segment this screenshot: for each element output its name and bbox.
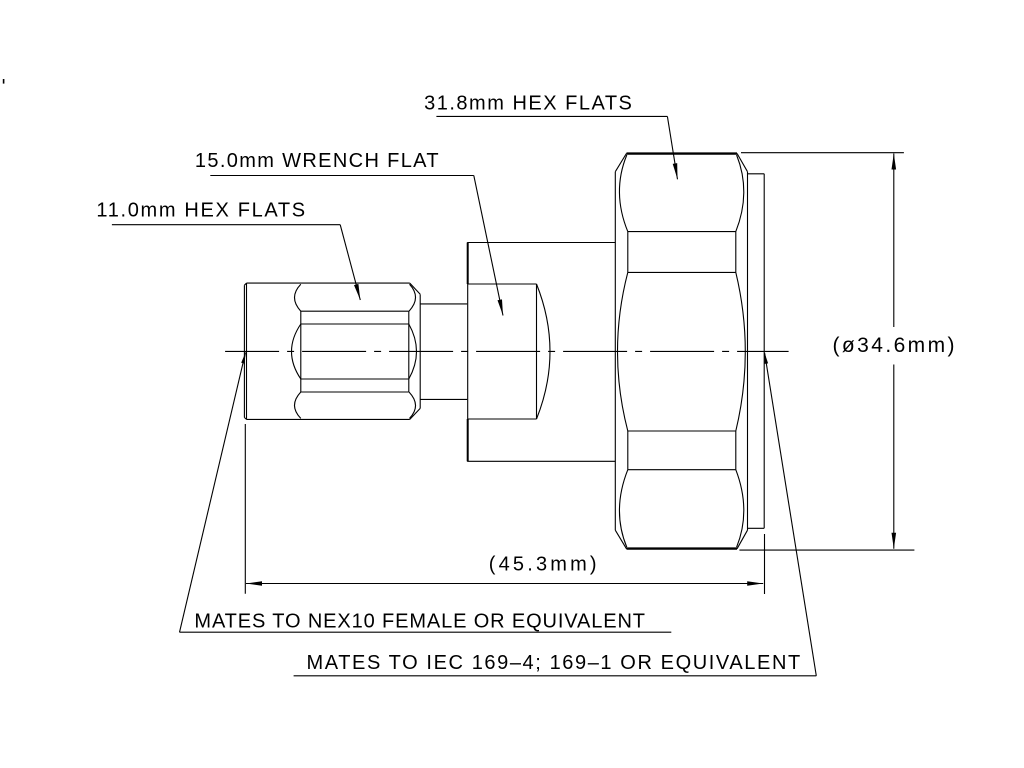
svg-text:15.0mm WRENCH FLAT: 15.0mm WRENCH FLAT	[195, 150, 439, 172]
svg-text:(45.3mm): (45.3mm)	[489, 554, 597, 576]
svg-text:11.0mm HEX FLATS: 11.0mm HEX FLATS	[96, 199, 305, 221]
svg-text:(ø34.6mm): (ø34.6mm)	[833, 334, 955, 357]
svg-text:MATES TO NEX10 FEMALE OR EQUIV: MATES TO NEX10 FEMALE OR EQUIVALENT	[194, 611, 645, 633]
